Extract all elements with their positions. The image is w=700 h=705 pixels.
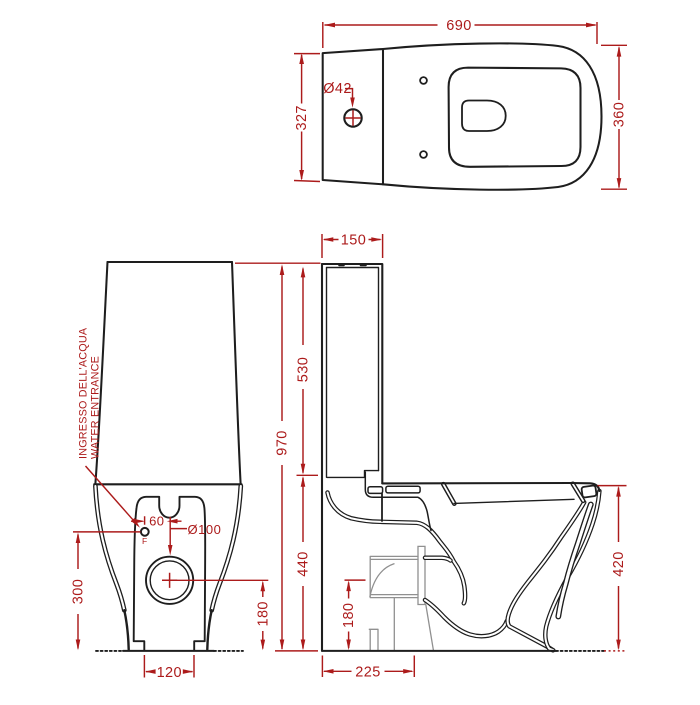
svg-text:225: 225 <box>355 665 380 681</box>
svg-text:327: 327 <box>294 105 310 130</box>
svg-text:690: 690 <box>446 18 471 34</box>
svg-text:180: 180 <box>255 601 271 626</box>
svg-text:WATER ENTRANCE: WATER ENTRANCE <box>90 356 102 459</box>
svg-text:970: 970 <box>275 430 291 455</box>
svg-text:Ø42: Ø42 <box>323 81 352 97</box>
svg-text:60: 60 <box>149 514 164 529</box>
svg-text:150: 150 <box>341 233 366 249</box>
svg-text:120: 120 <box>157 665 182 681</box>
svg-text:420: 420 <box>611 551 627 576</box>
svg-text:530: 530 <box>295 357 311 382</box>
svg-text:300: 300 <box>71 579 87 604</box>
svg-text:Ø100: Ø100 <box>188 522 222 537</box>
svg-text:INGRESSO DELL'ACQUA: INGRESSO DELL'ACQUA <box>78 327 90 459</box>
svg-text:360: 360 <box>612 102 628 127</box>
svg-text:F: F <box>142 536 148 546</box>
svg-text:440: 440 <box>296 551 312 576</box>
svg-text:180: 180 <box>341 603 357 628</box>
